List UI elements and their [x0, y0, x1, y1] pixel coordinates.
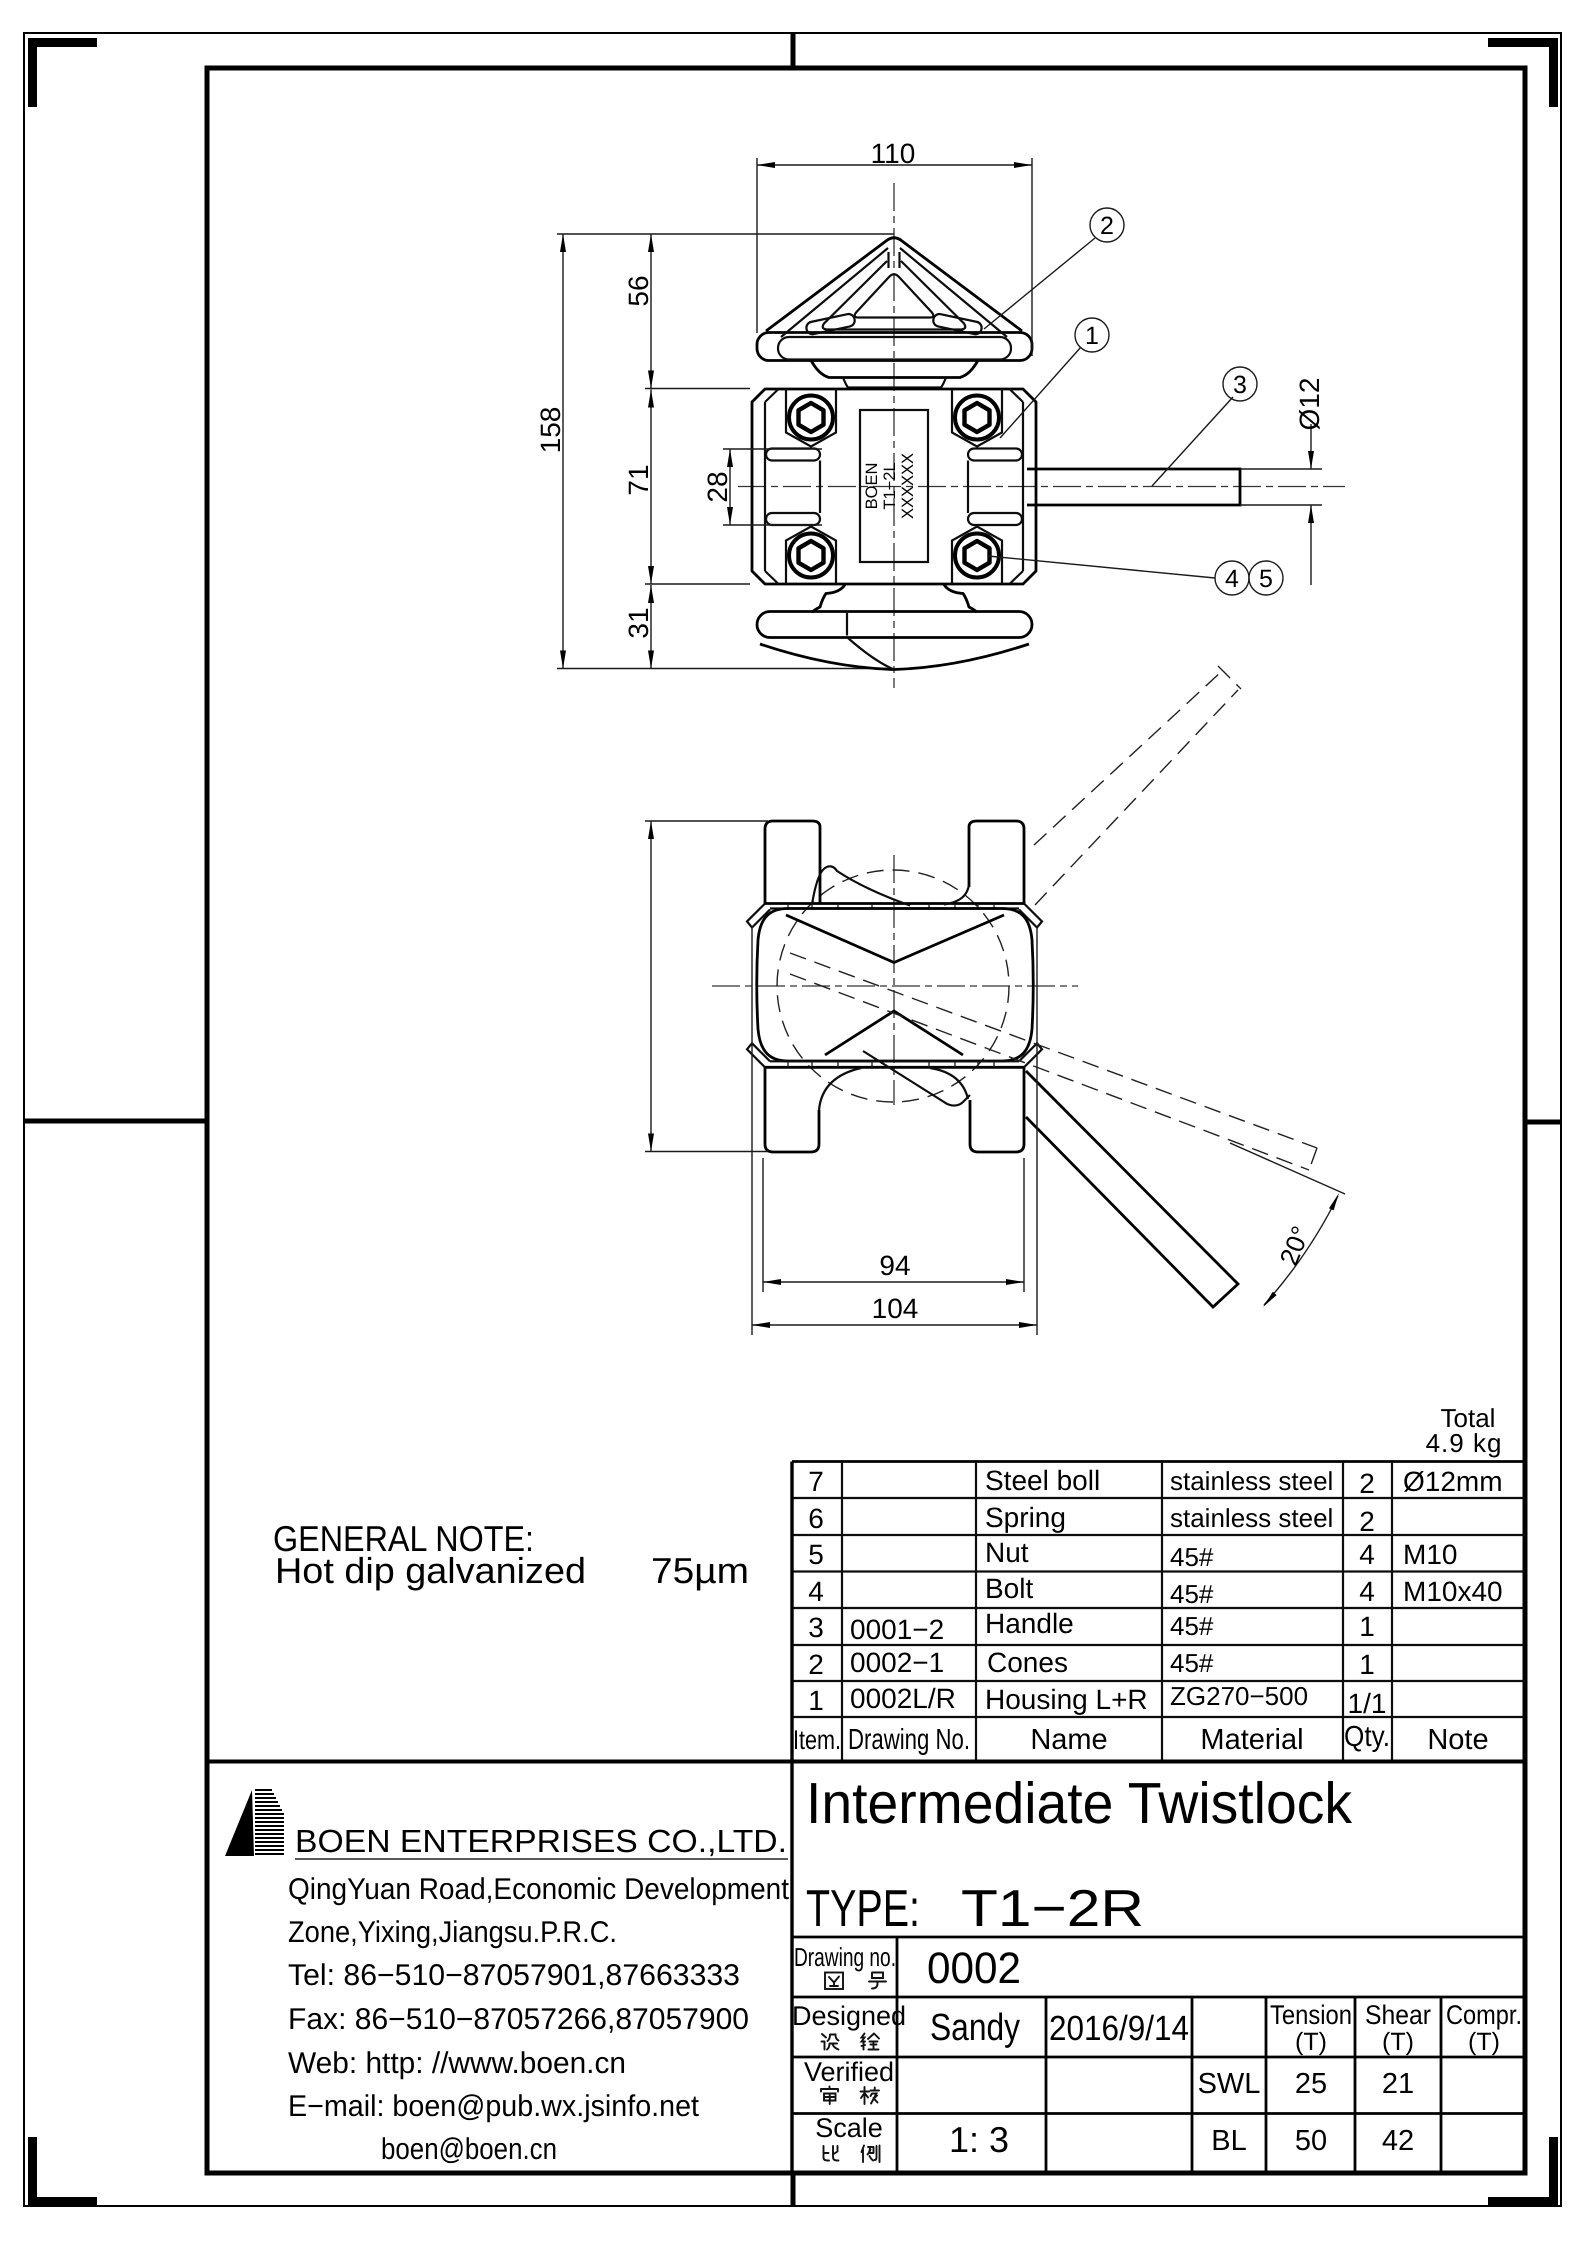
svg-text:42: 42 — [1382, 2125, 1414, 2157]
svg-text:0002L/R: 0002L/R — [850, 1683, 956, 1714]
svg-text:Verified: Verified — [804, 2057, 894, 2087]
svg-text:45#: 45# — [1170, 1648, 1214, 1678]
svg-text:Shear: Shear — [1365, 2000, 1431, 2030]
svg-text:Designed: Designed — [792, 2001, 906, 2031]
svg-text:Housing L+R: Housing L+R — [985, 1684, 1148, 1715]
svg-text:2: 2 — [1100, 212, 1114, 240]
svg-text:4: 4 — [1225, 565, 1239, 593]
svg-text:5: 5 — [808, 1539, 824, 1570]
svg-text:Spring: Spring — [985, 1502, 1066, 1533]
svg-text:2: 2 — [1359, 1506, 1375, 1537]
svg-text:Nut: Nut — [985, 1537, 1029, 1568]
svg-text:31: 31 — [623, 607, 654, 638]
svg-text:Handle: Handle — [985, 1608, 1074, 1639]
svg-text:Note: Note — [1427, 1724, 1488, 1756]
svg-text:45#: 45# — [1170, 1611, 1214, 1641]
svg-text:56: 56 — [623, 275, 654, 306]
svg-text:Name: Name — [1030, 1724, 1107, 1756]
svg-text:E−mail: boen@pub.wx.jsinfo.ne: E−mail: boen@pub.wx.jsinfo.net — [288, 2090, 700, 2123]
svg-text:Intermediate Twistlock: Intermediate Twistlock — [806, 1771, 1353, 1836]
svg-text:6: 6 — [808, 1503, 824, 1534]
svg-text:7: 7 — [808, 1466, 824, 1497]
svg-text:Tension: Tension — [1270, 2000, 1352, 2030]
svg-text:stainless steel: stainless steel — [1170, 1503, 1333, 1533]
svg-text:1: 3: 1: 3 — [949, 2119, 1009, 2160]
svg-text:Material: Material — [1200, 1724, 1303, 1756]
svg-text:boen@boen.cn: boen@boen.cn — [381, 2133, 557, 2166]
svg-text:stainless steel: stainless steel — [1170, 1466, 1333, 1496]
svg-text:4.9 kg: 4.9 kg — [1426, 1428, 1503, 1458]
svg-text:0002: 0002 — [927, 1944, 1021, 1993]
svg-text:3: 3 — [1233, 371, 1247, 399]
svg-text:71: 71 — [623, 464, 654, 495]
svg-text:2: 2 — [808, 1649, 824, 1680]
svg-text:2: 2 — [1359, 1468, 1375, 1499]
svg-text:(T): (T) — [1468, 2028, 1500, 2056]
svg-text:4: 4 — [1359, 1576, 1375, 1607]
svg-text:45#: 45# — [1170, 1579, 1214, 1609]
svg-text:110: 110 — [871, 138, 916, 169]
svg-text:1/1: 1/1 — [1348, 1688, 1387, 1719]
svg-text:T1−2L: T1−2L — [881, 462, 899, 509]
svg-text:45#: 45# — [1170, 1542, 1214, 1572]
svg-text:Bolt: Bolt — [985, 1573, 1033, 1604]
svg-text:Drawing no.: Drawing no. — [794, 1942, 896, 1972]
svg-text:Cones: Cones — [987, 1647, 1068, 1678]
svg-text:QingYuan Road,Economic Devel: QingYuan Road,Economic Development — [288, 1873, 790, 1906]
svg-text:TYPE:: TYPE: — [806, 1880, 920, 1938]
svg-text:Compr.: Compr. — [1446, 2000, 1522, 2030]
svg-text:1: 1 — [808, 1685, 824, 1716]
svg-text:28: 28 — [702, 471, 733, 502]
svg-text:Tel: 86−510−87057901,87663333: Tel: 86−510−87057901,87663333 — [288, 1959, 740, 1992]
svg-text:BL: BL — [1211, 2125, 1246, 2157]
svg-text:BOEN: BOEN — [863, 463, 881, 510]
svg-text:21: 21 — [1382, 2068, 1414, 2100]
svg-text:1: 1 — [1359, 1649, 1375, 1680]
svg-text:Hot dip galvanized: Hot dip galvanized — [275, 1550, 586, 1591]
svg-text:(T): (T) — [1382, 2028, 1414, 2056]
svg-text:Qty.: Qty. — [1344, 1721, 1390, 1753]
svg-text:1: 1 — [1085, 322, 1099, 350]
svg-text:Steel boll: Steel boll — [985, 1465, 1100, 1496]
svg-text:4: 4 — [808, 1576, 824, 1607]
svg-text:XXXXXX: XXXXXX — [899, 453, 917, 519]
svg-text:ZG270−500: ZG270−500 — [1170, 1681, 1308, 1711]
svg-text:Ø12mm: Ø12mm — [1403, 1466, 1503, 1497]
svg-text:2016/9/14: 2016/9/14 — [1049, 2009, 1189, 2048]
svg-text:1: 1 — [1359, 1611, 1375, 1642]
svg-text:3: 3 — [808, 1612, 824, 1643]
svg-text:Item.: Item. — [793, 1725, 841, 1755]
svg-text:50: 50 — [1295, 2125, 1327, 2157]
svg-text:5: 5 — [1259, 565, 1273, 593]
svg-text:Fax: 86−510−87057266,87057900: Fax: 86−510−87057266,87057900 — [288, 2003, 749, 2036]
svg-text:Web: http: //www.boen.cn: Web: http: //www.boen.cn — [288, 2047, 626, 2080]
svg-text:0001−2: 0001−2 — [850, 1614, 944, 1645]
svg-text:T1−2R: T1−2R — [961, 1880, 1144, 1938]
svg-text:104: 104 — [872, 1293, 919, 1324]
svg-text:158: 158 — [535, 407, 566, 454]
svg-text:94: 94 — [879, 1250, 910, 1281]
svg-text:Zone,Yixing,Jiangsu.P.R.C.: Zone,Yixing,Jiangsu.P.R.C. — [288, 1916, 617, 1949]
svg-text:25: 25 — [1295, 2068, 1327, 2100]
svg-text:(T): (T) — [1295, 2028, 1327, 2056]
svg-text:M10x40: M10x40 — [1403, 1576, 1503, 1607]
svg-text:Sandy: Sandy — [930, 2007, 1020, 2049]
svg-text:SWL: SWL — [1198, 2068, 1261, 2100]
svg-text:75µm: 75µm — [651, 1550, 749, 1591]
svg-text:4: 4 — [1359, 1539, 1375, 1570]
svg-text:Scale: Scale — [815, 2113, 883, 2143]
svg-text:0002−1: 0002−1 — [850, 1647, 944, 1678]
svg-text:Drawing No.: Drawing No. — [848, 1724, 970, 1756]
svg-text:BOEN ENTERPRISES CO.,LTD.: BOEN ENTERPRISES CO.,LTD. — [295, 1823, 787, 1859]
svg-text:M10: M10 — [1403, 1539, 1457, 1570]
svg-text:Ø12: Ø12 — [1294, 378, 1325, 431]
